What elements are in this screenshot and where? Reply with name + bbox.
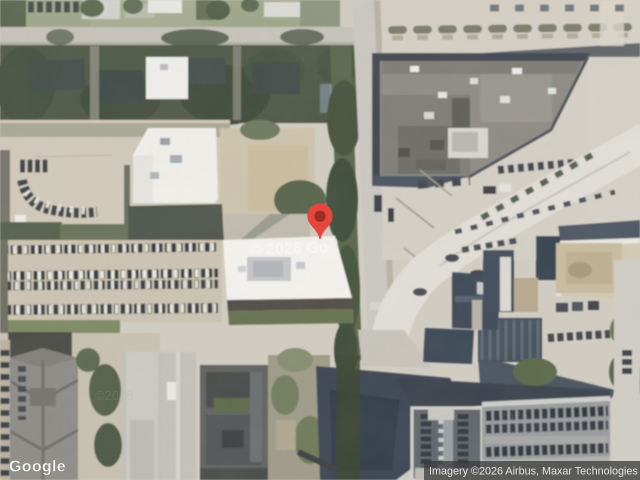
svg-text:Google: Google [9, 459, 66, 476]
svg-text:Imagery ©2026 Airbus, Maxar Te: Imagery ©2026 Airbus, Maxar Technologies [429, 466, 638, 478]
